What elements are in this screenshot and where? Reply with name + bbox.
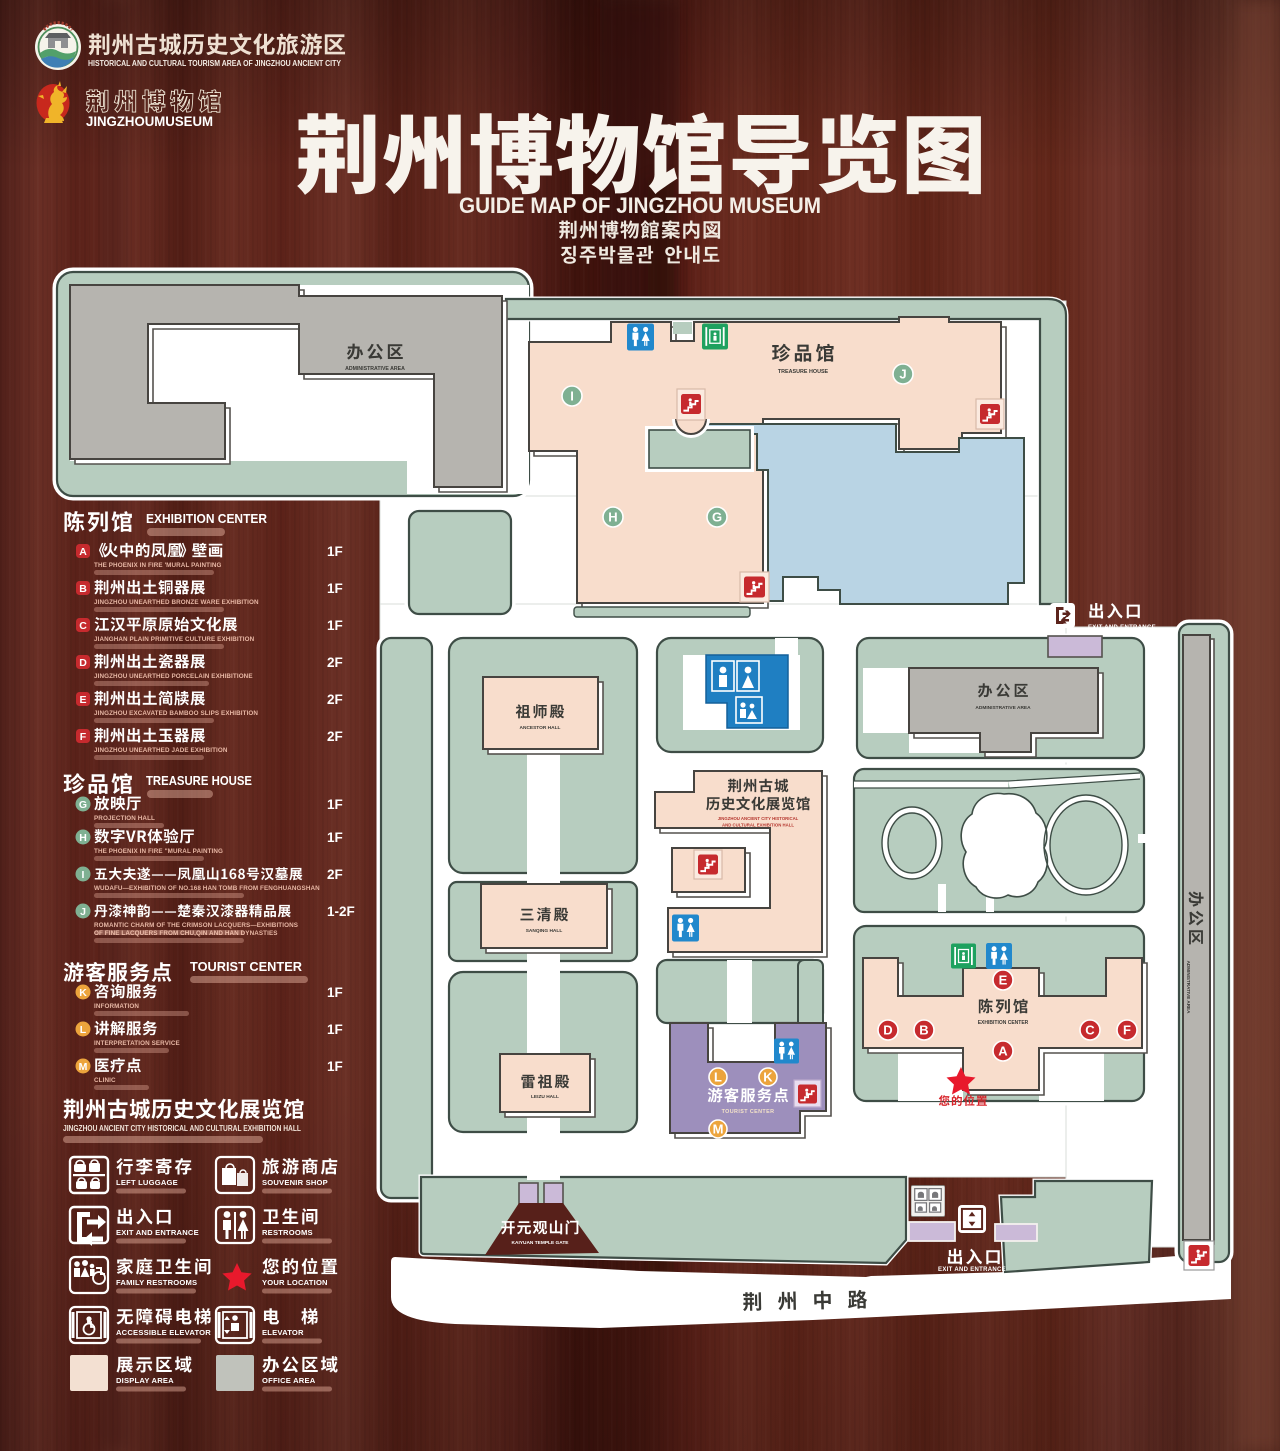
svg-text:OF FINE LACQUERS FROM CHU,QIN: OF FINE LACQUERS FROM CHU,QIN AND HAN DY… [94,930,278,937]
svg-text:C: C [1085,1023,1095,1038]
svg-text:EXHIBITION CENTER: EXHIBITION CENTER [978,1020,1029,1026]
svg-text:2F: 2F [327,867,343,882]
svg-text:THE PHOENIX IN FIRE "MURAL PAI: THE PHOENIX IN FIRE "MURAL PAINTING [94,848,223,855]
svg-text:1F: 1F [327,1059,343,1074]
svg-text:J: J [80,906,86,918]
svg-text:K: K [763,1070,773,1085]
svg-text:G: G [79,799,87,811]
svg-text:B: B [919,1023,928,1038]
svg-text:1F: 1F [327,985,343,1000]
svg-text:D: D [79,657,87,669]
svg-text:GUIDE MAP OF JINGZHOU MUSEUM: GUIDE MAP OF JINGZHOU MUSEUM [459,193,821,218]
svg-text:SOUVENIR SHOP: SOUVENIR SHOP [262,1178,328,1187]
svg-text:KAIYUAN TEMPLE GATE: KAIYUAN TEMPLE GATE [512,1240,570,1246]
svg-text:INTERPRETATION SERVICE: INTERPRETATION SERVICE [94,1040,180,1047]
svg-text:WUDAFU—EXHIBITION OF NO.168 HA: WUDAFU—EXHIBITION OF NO.168 HAN TOMB FRO… [94,885,320,892]
svg-text:ADMINISTRATIVE AREA: ADMINISTRATIVE AREA [345,366,405,372]
svg-text:JINGZHOU ANCIENT CITY HISTORIC: JINGZHOU ANCIENT CITY HISTORICAL AND CUL… [63,1124,301,1133]
svg-text:L: L [80,1024,87,1036]
svg-text:1F: 1F [327,830,343,845]
svg-text:ACCESSIBLE ELEVATOR: ACCESSIBLE ELEVATOR [116,1328,211,1337]
svg-text:I: I [82,869,85,881]
svg-text:JIANGHAN PLAIN PRIMITIVE CULTU: JIANGHAN PLAIN PRIMITIVE CULTURE EXHIBIT… [94,636,255,643]
svg-text:M: M [713,1122,724,1137]
svg-text:C: C [79,620,87,632]
svg-text:F: F [1123,1023,1131,1038]
svg-text:A: A [79,546,87,558]
svg-text:ELEVATOR: ELEVATOR [262,1328,304,1337]
svg-text:JINGZHOU UNEARTHED PORCELAIN E: JINGZHOU UNEARTHED PORCELAIN EXHIBITIONE [94,673,253,680]
svg-text:2F: 2F [327,692,343,707]
svg-text:JINGZHOU ANCIENT CITY HISTORIC: JINGZHOU ANCIENT CITY HISTORICAL [718,816,799,821]
svg-text:1F: 1F [327,581,343,596]
svg-text:ANCESTOR HALL: ANCESTOR HALL [520,725,561,731]
svg-text:JINGZHOU UNEARTHED JADE EXHIBI: JINGZHOU UNEARTHED JADE EXHIBITION [94,747,228,754]
svg-text:DISPLAY AREA: DISPLAY AREA [116,1376,174,1385]
svg-text:B: B [79,583,87,595]
svg-text:L: L [714,1070,722,1085]
svg-text:EXIT AND ENTRANCE: EXIT AND ENTRANCE [938,1267,1006,1273]
svg-text:I: I [570,389,574,404]
svg-text:TREASURE HOUSE: TREASURE HOUSE [146,773,252,788]
svg-text:J: J [899,367,906,382]
svg-text:ROMANTIC CHARM OF THE CRIMSON: ROMANTIC CHARM OF THE CRIMSON LACQUERS—E… [94,922,298,929]
svg-text:E: E [79,694,86,706]
svg-text:EXHIBITION CENTER: EXHIBITION CENTER [146,511,267,526]
svg-text:OFFICE AREA: OFFICE AREA [262,1376,316,1385]
svg-text:M: M [79,1061,88,1073]
svg-text:1F: 1F [327,1022,343,1037]
svg-text:INFORMATION: INFORMATION [94,1003,139,1010]
svg-text:EXIT AND ENTRANCE: EXIT AND ENTRANCE [116,1228,199,1237]
svg-text:A: A [998,1044,1008,1059]
svg-text:RESTROOMS: RESTROOMS [262,1228,313,1237]
svg-text:H: H [79,832,87,844]
svg-text:F: F [80,731,87,743]
svg-text:2F: 2F [327,655,343,670]
svg-text:YOUR LOCATION: YOUR LOCATION [262,1278,328,1287]
svg-text:AND CULTURAL EXHIBITION HALL: AND CULTURAL EXHIBITION HALL [722,823,794,828]
svg-text:LEIZU HALL: LEIZU HALL [531,1094,559,1100]
svg-text:D: D [883,1023,892,1038]
svg-text:LEFT LUGGAGE: LEFT LUGGAGE [116,1178,178,1187]
svg-text:JINGZHOU EXCAVATED BAMBOO SLIP: JINGZHOU EXCAVATED BAMBOO SLIPS EXHIBITI… [94,710,258,717]
svg-text:JINGZHOUMUSEUM: JINGZHOUMUSEUM [86,113,213,129]
svg-text:JINGZHOU UNEARTHED BRONZE WARE: JINGZHOU UNEARTHED BRONZE WARE EXHIBITIO… [94,599,259,606]
svg-text:1F: 1F [327,797,343,812]
svg-text:G: G [712,510,722,525]
svg-text:CLINIC: CLINIC [94,1077,116,1084]
svg-text:SANQING HALL: SANQING HALL [526,928,563,934]
svg-text:ADMINISTRATIVE AREA: ADMINISTRATIVE AREA [1186,961,1191,1015]
svg-text:TOURIST CENTER: TOURIST CENTER [190,959,302,974]
svg-text:TREASURE HOUSE: TREASURE HOUSE [778,369,829,375]
svg-text:1F: 1F [327,618,343,633]
svg-text:EXIT AND ENTRANCE: EXIT AND ENTRANCE [1088,625,1156,631]
svg-text:FAMILY RESTROOMS: FAMILY RESTROOMS [116,1278,197,1287]
svg-text:2F: 2F [327,729,343,744]
svg-text:THE PHOENIX IN FIRE 'MURAL PAI: THE PHOENIX IN FIRE 'MURAL PAINTING [94,562,222,569]
svg-text:PROJECTION HALL: PROJECTION HALL [94,815,155,822]
svg-text:H: H [608,510,617,525]
svg-text:TOURIST CENTER: TOURIST CENTER [722,1109,775,1115]
svg-text:K: K [79,987,87,999]
svg-text:1-2F: 1-2F [327,904,355,919]
svg-text:E: E [999,973,1008,988]
svg-text:1F: 1F [327,544,343,559]
svg-text:HISTORICAL AND CULTURAL TOURIS: HISTORICAL AND CULTURAL TOURISM AREA OF … [88,58,341,68]
svg-text:ADMINISTRATIVE AREA: ADMINISTRATIVE AREA [975,705,1031,711]
